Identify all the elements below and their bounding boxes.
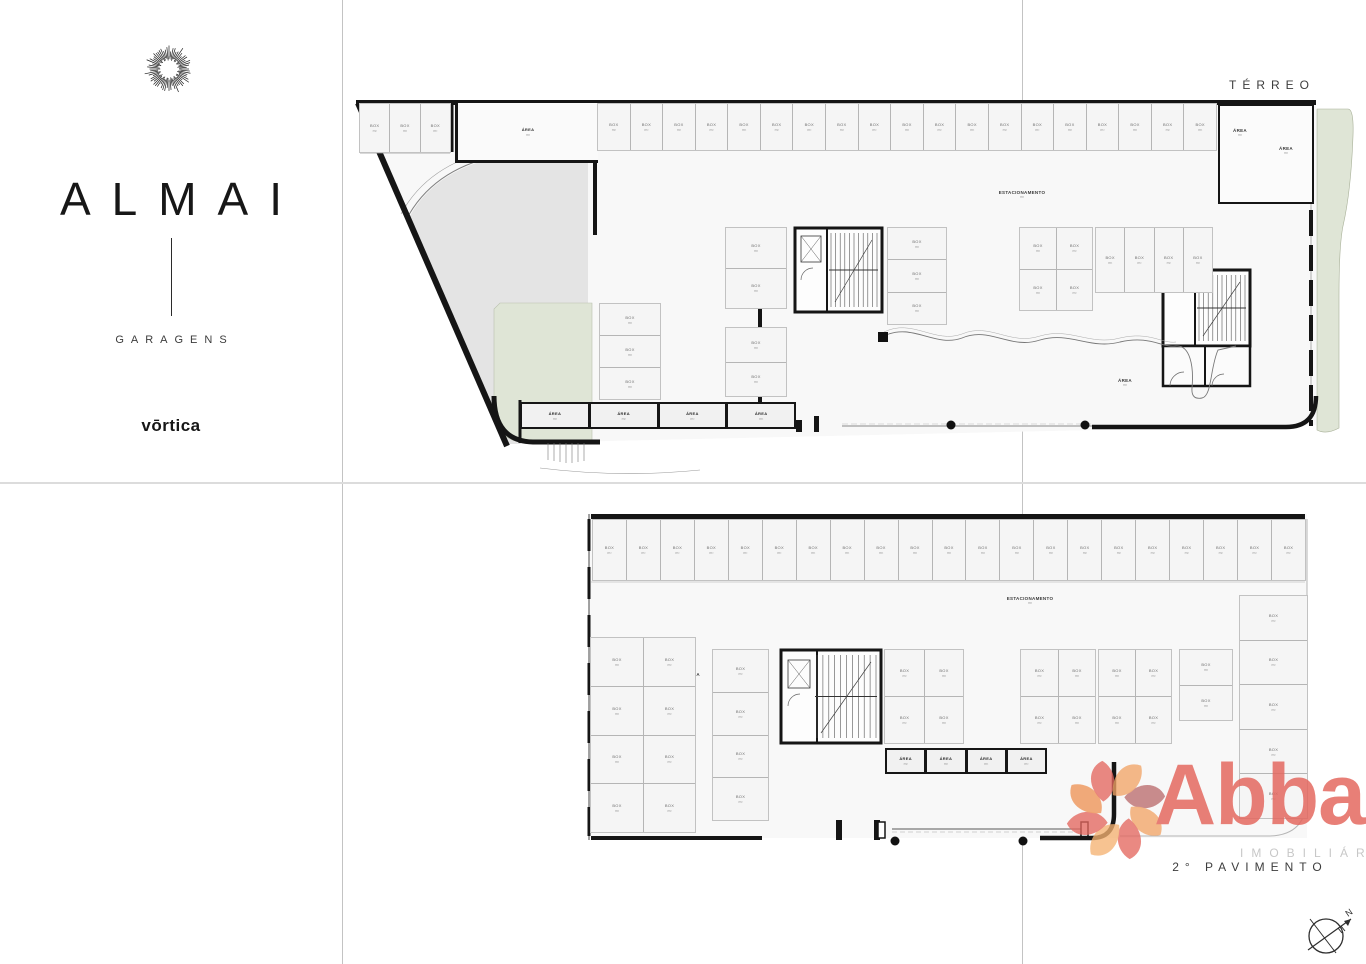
green-strip-right bbox=[1317, 109, 1353, 432]
utility-room: ÁREA m² bbox=[657, 404, 726, 427]
pav2-parking-label: ESTACIONAMENTO m² bbox=[975, 596, 1085, 605]
parking-stall: BOX m² bbox=[600, 367, 660, 399]
parking-stall: BOX m² bbox=[1180, 650, 1232, 685]
abba-wordmark: Abba bbox=[1154, 752, 1365, 838]
parking-stall: BOX m² bbox=[660, 520, 694, 580]
parking-stall: BOX m² bbox=[726, 228, 786, 268]
utility-room: ÁREA m² bbox=[965, 750, 1005, 772]
parking-stall: BOX m² bbox=[726, 362, 786, 397]
parking-stall: BOX m² bbox=[643, 783, 695, 832]
parking-stall: BOX m² bbox=[726, 268, 786, 309]
parking-stall: BOX m² bbox=[1151, 104, 1184, 150]
terreo-cluster-g: BOX m² BOX m² bbox=[726, 328, 786, 396]
parking-stall: BOX m² bbox=[1020, 228, 1056, 269]
parking-stall: BOX m² bbox=[1135, 520, 1169, 580]
parking-stall: BOX m² bbox=[713, 692, 768, 735]
parking-stall: BOX m² bbox=[600, 304, 660, 335]
parking-stall: BOX m² bbox=[888, 292, 946, 324]
parking-stall: BOX m² bbox=[591, 638, 643, 686]
terreo-cluster-d: BOX m² BOX m² BOX m² BOX m² bbox=[1020, 228, 1092, 310]
parking-stall: BOX m² bbox=[626, 520, 660, 580]
parking-stall: BOX m² bbox=[662, 104, 695, 150]
parking-stall: BOX m² bbox=[643, 638, 695, 686]
terreo-top-stall-row: BOX m² BOX m² BOX m² BOX m² BOX m² BOX m… bbox=[598, 104, 1216, 150]
pav2-left-grid: BOX m² BOX m² BOX m² BOX m² BOX m² BOX m… bbox=[591, 638, 695, 832]
parking-stall: BOX m² bbox=[1096, 228, 1124, 292]
parking-stall: BOX m² bbox=[726, 328, 786, 362]
column-dot bbox=[891, 837, 900, 846]
parking-stall: BOX m² bbox=[598, 104, 630, 150]
parking-stall: BOX m² bbox=[694, 520, 728, 580]
parking-stall: BOX m² bbox=[1067, 520, 1101, 580]
parking-stall: BOX m² bbox=[1240, 684, 1307, 729]
parking-stall: BOX m² bbox=[420, 104, 450, 152]
parking-stall: BOX m² bbox=[830, 520, 864, 580]
door-jamb bbox=[878, 822, 885, 838]
parking-stall: BOX m² bbox=[1124, 228, 1153, 292]
parking-stall: BOX m² bbox=[955, 104, 988, 150]
parking-stall: BOX m² bbox=[1180, 685, 1232, 721]
brand-title: ALMAI bbox=[0, 172, 342, 226]
parking-stall: BOX m² bbox=[792, 104, 825, 150]
parking-stall: BOX m² bbox=[1021, 696, 1058, 743]
north-letter: N bbox=[1343, 907, 1354, 919]
parking-stall: BOX m² bbox=[695, 104, 728, 150]
parking-stall: BOX m² bbox=[762, 520, 796, 580]
parking-stall: BOX m² bbox=[1183, 104, 1216, 150]
parking-stall: BOX m² bbox=[858, 104, 891, 150]
parking-stall: BOX m² bbox=[825, 104, 858, 150]
parking-stall: BOX m² bbox=[965, 520, 999, 580]
room-label: ÁREA m² bbox=[1220, 128, 1260, 137]
parking-stall: BOX m² bbox=[888, 228, 946, 259]
pav2-right-pair: BOX m² BOX m² bbox=[1180, 650, 1232, 720]
parking-stall: BOX m² bbox=[864, 520, 898, 580]
utility-room: ÁREA m² bbox=[887, 750, 924, 772]
parking-stall: BOX m² bbox=[727, 104, 760, 150]
pav2-mid-grid: BOX m² BOX m² BOX m² BOX m² bbox=[885, 650, 963, 743]
parking-stall: BOX m² bbox=[389, 104, 419, 152]
parking-stall: BOX m² bbox=[760, 104, 793, 150]
parking-stall: BOX m² bbox=[1020, 269, 1056, 311]
terreo-canopy-room: ÁREA m² bbox=[455, 103, 598, 163]
parking-stall: BOX m² bbox=[1058, 650, 1095, 696]
parking-stall: BOX m² bbox=[1154, 228, 1183, 292]
parking-stall: BOX m² bbox=[1203, 520, 1237, 580]
terreo-cluster-b: BOX m² BOX m² bbox=[726, 228, 786, 308]
terreo-topleft-stalls: BOX m² BOX m² BOX m² bbox=[360, 104, 450, 152]
parking-stall: BOX m² bbox=[885, 696, 924, 743]
terreo-parking-label: ESTACIONAMENTO m² bbox=[962, 190, 1082, 199]
parking-stall: BOX m² bbox=[796, 520, 830, 580]
terreo-cluster-f: BOX m² BOX m² BOX m² bbox=[600, 304, 660, 399]
parking-stall: BOX m² bbox=[1271, 520, 1305, 580]
terreo-title: TÉRREO bbox=[1180, 78, 1315, 92]
wall-stub bbox=[836, 820, 842, 840]
parking-stall: BOX m² bbox=[924, 650, 963, 696]
parking-stall: BOX m² bbox=[1240, 596, 1307, 640]
pav2-right-grid-a: BOX m² BOX m² BOX m² BOX m² bbox=[1021, 650, 1095, 743]
wall-stub bbox=[796, 420, 802, 432]
parking-stall: BOX m² bbox=[923, 104, 956, 150]
column-dot bbox=[947, 421, 956, 430]
parking-stall: BOX m² bbox=[1056, 228, 1092, 269]
parking-stall: BOX m² bbox=[1058, 696, 1095, 743]
parking-stall: BOX m² bbox=[1033, 520, 1067, 580]
parking-stall: BOX m² bbox=[1135, 650, 1171, 696]
parking-stall: BOX m² bbox=[1135, 696, 1171, 743]
page: ALMAI GARAGENS vōrtica TÉRREO 2° PAVIMEN… bbox=[0, 0, 1366, 964]
parking-stall: BOX m² bbox=[890, 104, 923, 150]
parking-stall: BOX m² bbox=[360, 104, 389, 152]
brand-divider bbox=[171, 238, 172, 316]
parking-stall: BOX m² bbox=[898, 520, 932, 580]
utility-room: ÁREA m² bbox=[522, 404, 588, 427]
parking-stall: BOX m² bbox=[630, 104, 663, 150]
parking-stall: BOX m² bbox=[999, 520, 1033, 580]
parking-stall: BOX m² bbox=[1021, 650, 1058, 696]
parking-stall: BOX m² bbox=[1099, 696, 1135, 743]
pav2-top-stall-row: BOX m² BOX m² BOX m² BOX m² BOX m² BOX m… bbox=[593, 520, 1305, 580]
pav2-mid-left-stack: BOX m² BOX m² BOX m² BOX m² bbox=[713, 650, 768, 820]
parking-stall: BOX m² bbox=[932, 520, 966, 580]
parking-stall: BOX m² bbox=[713, 735, 768, 778]
column-dot bbox=[1019, 837, 1028, 846]
parking-stall: BOX m² bbox=[1169, 520, 1203, 580]
abba-tagline: IMOBILIÁRIA bbox=[1240, 846, 1366, 860]
brand-subtitle: GARAGENS bbox=[0, 334, 342, 346]
parking-stall: BOX m² bbox=[713, 777, 768, 820]
parking-stall: BOX m² bbox=[1237, 520, 1271, 580]
parking-stall: BOX m² bbox=[1056, 269, 1092, 311]
parking-stall: BOX m² bbox=[1099, 650, 1135, 696]
parking-stall: BOX m² bbox=[591, 686, 643, 735]
parking-stall: BOX m² bbox=[988, 104, 1021, 150]
stair-core bbox=[795, 228, 882, 312]
utility-room: ÁREA m² bbox=[924, 750, 964, 772]
developer-logo: vōrtica bbox=[0, 416, 342, 436]
terreo-area-label: ÁREA m² bbox=[1080, 378, 1170, 387]
top-wall bbox=[591, 514, 1305, 519]
parking-stall: BOX m² bbox=[885, 650, 924, 696]
parking-stall: BOX m² bbox=[643, 686, 695, 735]
parking-stall: BOX m² bbox=[643, 735, 695, 784]
stair-core-2 bbox=[781, 650, 881, 743]
utility-room: ÁREA m² bbox=[1005, 750, 1045, 772]
column-dot bbox=[1081, 421, 1090, 430]
parking-stall: BOX m² bbox=[713, 650, 768, 692]
parking-stall: BOX m² bbox=[1086, 104, 1119, 150]
pav2-right-grid-b: BOX m² BOX m² BOX m² BOX m² bbox=[1099, 650, 1171, 743]
parking-stall: BOX m² bbox=[593, 520, 626, 580]
parking-stall: BOX m² bbox=[924, 696, 963, 743]
parking-stall: BOX m² bbox=[600, 335, 660, 367]
parking-stall: BOX m² bbox=[591, 783, 643, 832]
parking-stall: BOX m² bbox=[1021, 104, 1054, 150]
parking-stall: BOX m² bbox=[1240, 640, 1307, 685]
pav2-bottom-rooms: ÁREA m² ÁREA m² ÁREA m² ÁREA m² bbox=[885, 748, 1047, 774]
ramp-hatch bbox=[540, 443, 700, 474]
parking-stall: BOX m² bbox=[1101, 520, 1135, 580]
room-label: ÁREA m² bbox=[1264, 146, 1308, 155]
terreo-cluster-e: BOX m² BOX m² BOX m² BOX m² bbox=[1096, 228, 1212, 292]
terreo-bottom-rooms: ÁREA m² ÁREA m² ÁREA m² ÁREA m² bbox=[520, 402, 796, 429]
column-square bbox=[878, 332, 888, 342]
sunburst-icon bbox=[133, 33, 205, 105]
terreo-right-rooms: ÁREA m² ÁREA m² bbox=[1218, 104, 1314, 204]
parking-stall: BOX m² bbox=[1118, 104, 1151, 150]
watermark: Abba IMOBILIÁRIA bbox=[1058, 750, 1366, 864]
parking-stall: BOX m² bbox=[1053, 104, 1086, 150]
parking-stall: BOX m² bbox=[1183, 228, 1212, 292]
parking-stall: BOX m² bbox=[728, 520, 762, 580]
terreo-cluster-c: BOX m² BOX m² BOX m² bbox=[888, 228, 946, 324]
parking-stall: BOX m² bbox=[888, 259, 946, 291]
utility-room: ÁREA m² bbox=[725, 404, 794, 427]
utility-room: ÁREA m² bbox=[588, 404, 657, 427]
wall-stub bbox=[814, 416, 819, 432]
north-arrow: N bbox=[1308, 907, 1354, 953]
parking-stall: BOX m² bbox=[591, 735, 643, 784]
